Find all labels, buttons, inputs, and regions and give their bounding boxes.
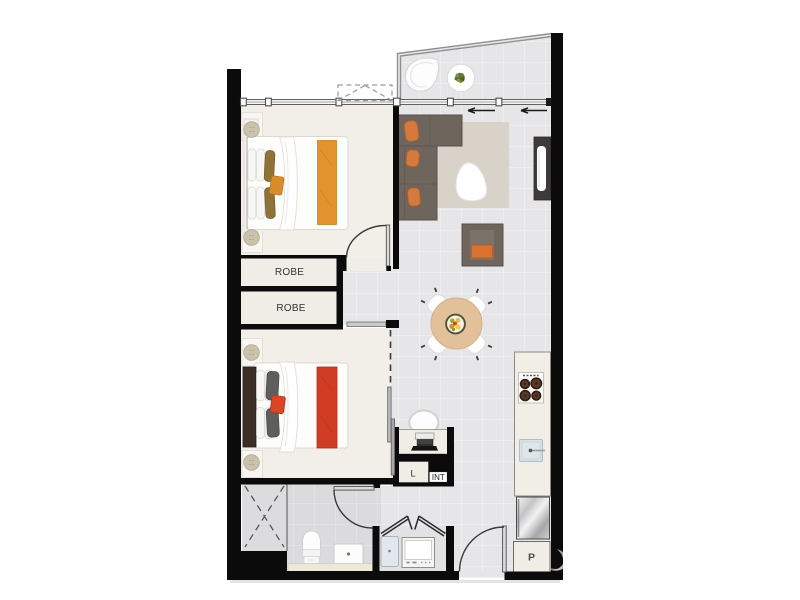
- svg-text:ROBE: ROBE: [275, 267, 304, 278]
- svg-text:INT: INT: [432, 473, 445, 482]
- svg-text:ROBE: ROBE: [276, 303, 305, 314]
- svg-text:P: P: [528, 552, 535, 564]
- svg-text:L: L: [410, 469, 415, 479]
